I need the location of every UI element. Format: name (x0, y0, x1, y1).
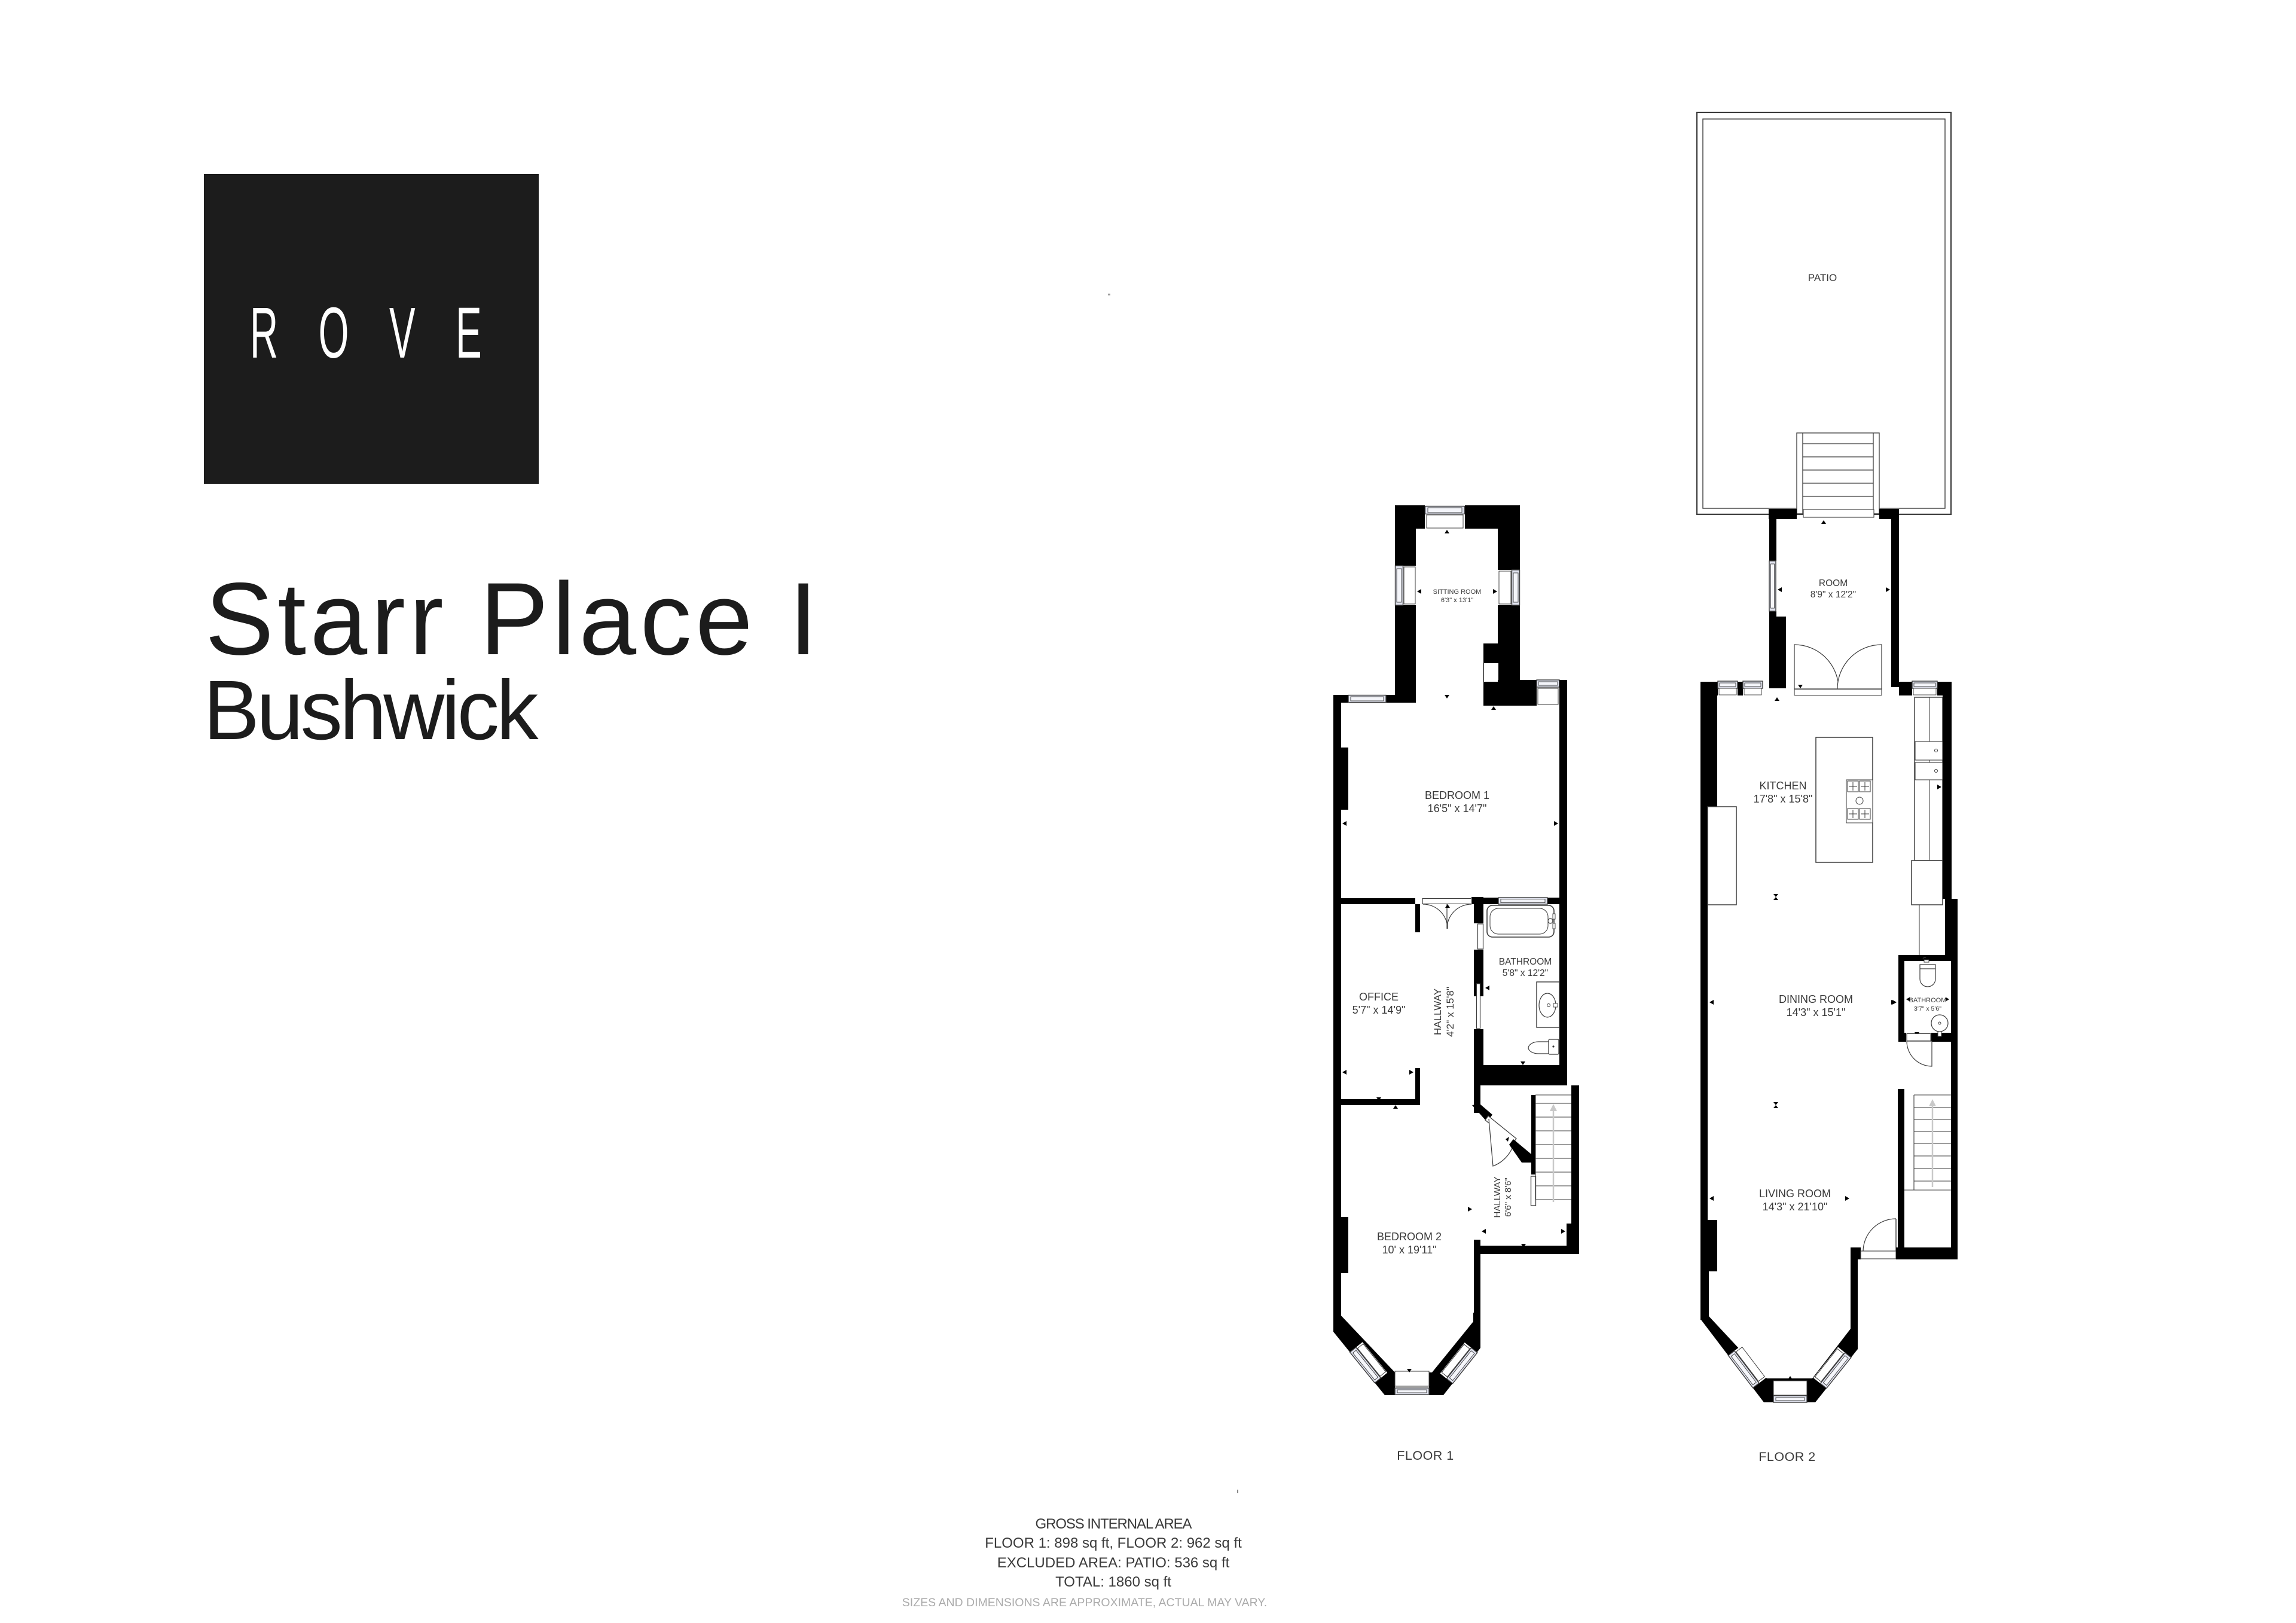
svg-text:FLOOR 1: 898 sq ft, FLOOR 2: 9: FLOOR 1: 898 sq ft, FLOOR 2: 962 sq ft (985, 1535, 1242, 1551)
svg-text:16'5" x 14'7": 16'5" x 14'7" (1428, 803, 1487, 814)
svg-text:BATHROOM: BATHROOM (1909, 997, 1947, 1004)
svg-text:Bushwick: Bushwick (203, 663, 539, 757)
svg-text:EXCLUDED AREA: PATIO: 536 sq f: EXCLUDED AREA: PATIO: 536 sq ft (997, 1555, 1230, 1571)
svg-text:HALLWAY: HALLWAY (1432, 989, 1443, 1035)
svg-text:FLOOR 1: FLOOR 1 (1397, 1448, 1454, 1463)
svg-text:ROVE: ROVE (250, 292, 522, 373)
svg-text:3'7" x 5'6": 3'7" x 5'6" (1914, 1005, 1941, 1012)
svg-text:LIVING ROOM: LIVING ROOM (1759, 1188, 1831, 1200)
svg-text:6'3" x 13'1": 6'3" x 13'1" (1441, 597, 1473, 604)
svg-text:14'3" x 21'10": 14'3" x 21'10" (1763, 1201, 1828, 1213)
svg-text:17'8" x 15'8": 17'8" x 15'8" (1754, 793, 1813, 805)
svg-text:BEDROOM 1: BEDROOM 1 (1425, 789, 1489, 801)
svg-text:SITTING ROOM: SITTING ROOM (1433, 588, 1482, 596)
svg-text:14'3" x 15'1": 14'3" x 15'1" (1787, 1006, 1846, 1018)
svg-text:4'2" x 15'8": 4'2" x 15'8" (1445, 987, 1456, 1037)
svg-text:TOTAL: 1860 sq ft: TOTAL: 1860 sq ft (1055, 1574, 1171, 1590)
svg-text:5'8" x 12'2": 5'8" x 12'2" (1503, 968, 1548, 978)
svg-text:Starr Place I: Starr Place I (205, 562, 822, 676)
svg-text:OFFICE: OFFICE (1359, 991, 1399, 1003)
svg-text:DINING ROOM: DINING ROOM (1779, 993, 1853, 1005)
svg-text:5'7" x 14'9": 5'7" x 14'9" (1352, 1004, 1406, 1016)
svg-text:KITCHEN: KITCHEN (1759, 780, 1806, 792)
svg-text:PATIO: PATIO (1808, 272, 1837, 283)
svg-text:8'9" x 12'2": 8'9" x 12'2" (1810, 590, 1856, 600)
svg-text:BEDROOM 2: BEDROOM 2 (1377, 1231, 1442, 1243)
svg-text:ROOM: ROOM (1819, 578, 1848, 588)
svg-text:GROSS INTERNAL AREA: GROSS INTERNAL AREA (1036, 1516, 1192, 1532)
svg-text:HALLWAY: HALLWAY (1492, 1177, 1503, 1218)
svg-text:6'6" x 8'6": 6'6" x 8'6" (1503, 1177, 1513, 1217)
svg-text:FLOOR 2: FLOOR 2 (1758, 1450, 1816, 1464)
svg-text:BATHROOM: BATHROOM (1499, 957, 1552, 967)
svg-text:10' x 19'11": 10' x 19'11" (1382, 1244, 1437, 1256)
svg-text:SIZES AND DIMENSIONS ARE APPRO: SIZES AND DIMENSIONS ARE APPROXIMATE, AC… (902, 1596, 1267, 1609)
